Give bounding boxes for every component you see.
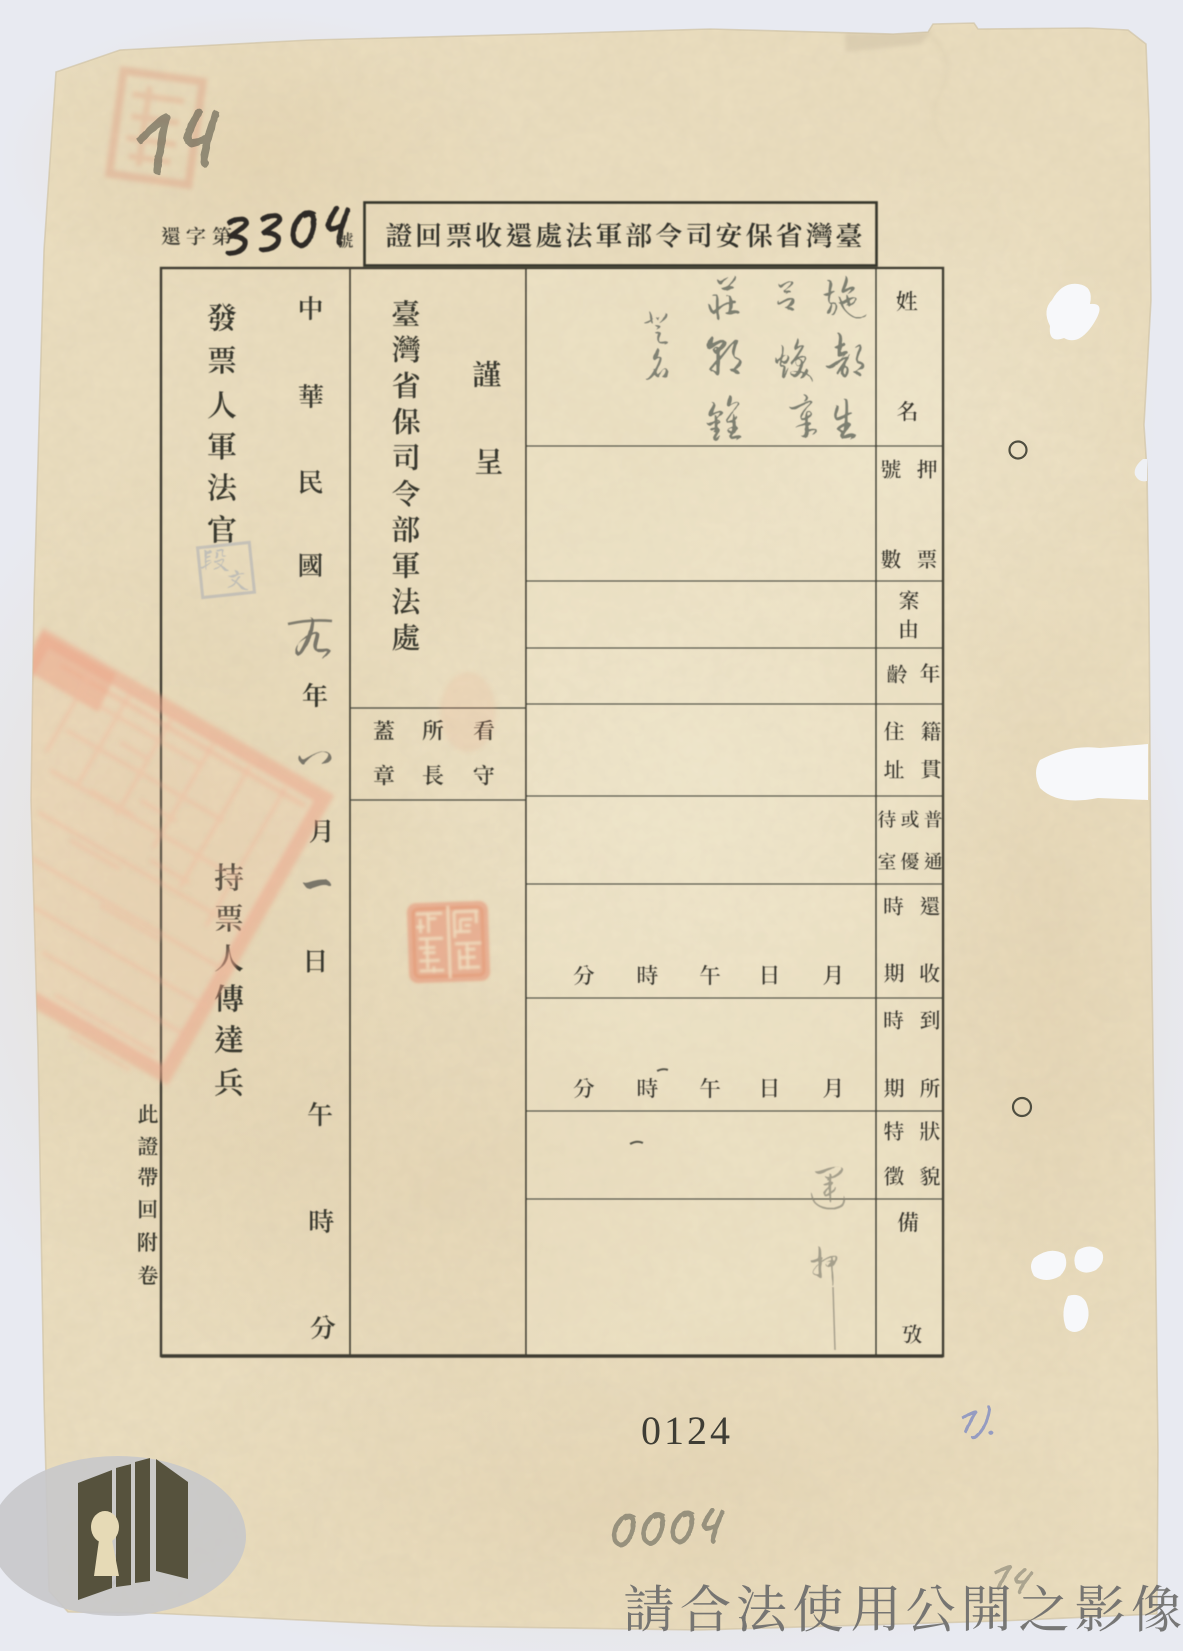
svg-text:0124: 0124	[641, 1408, 733, 1453]
